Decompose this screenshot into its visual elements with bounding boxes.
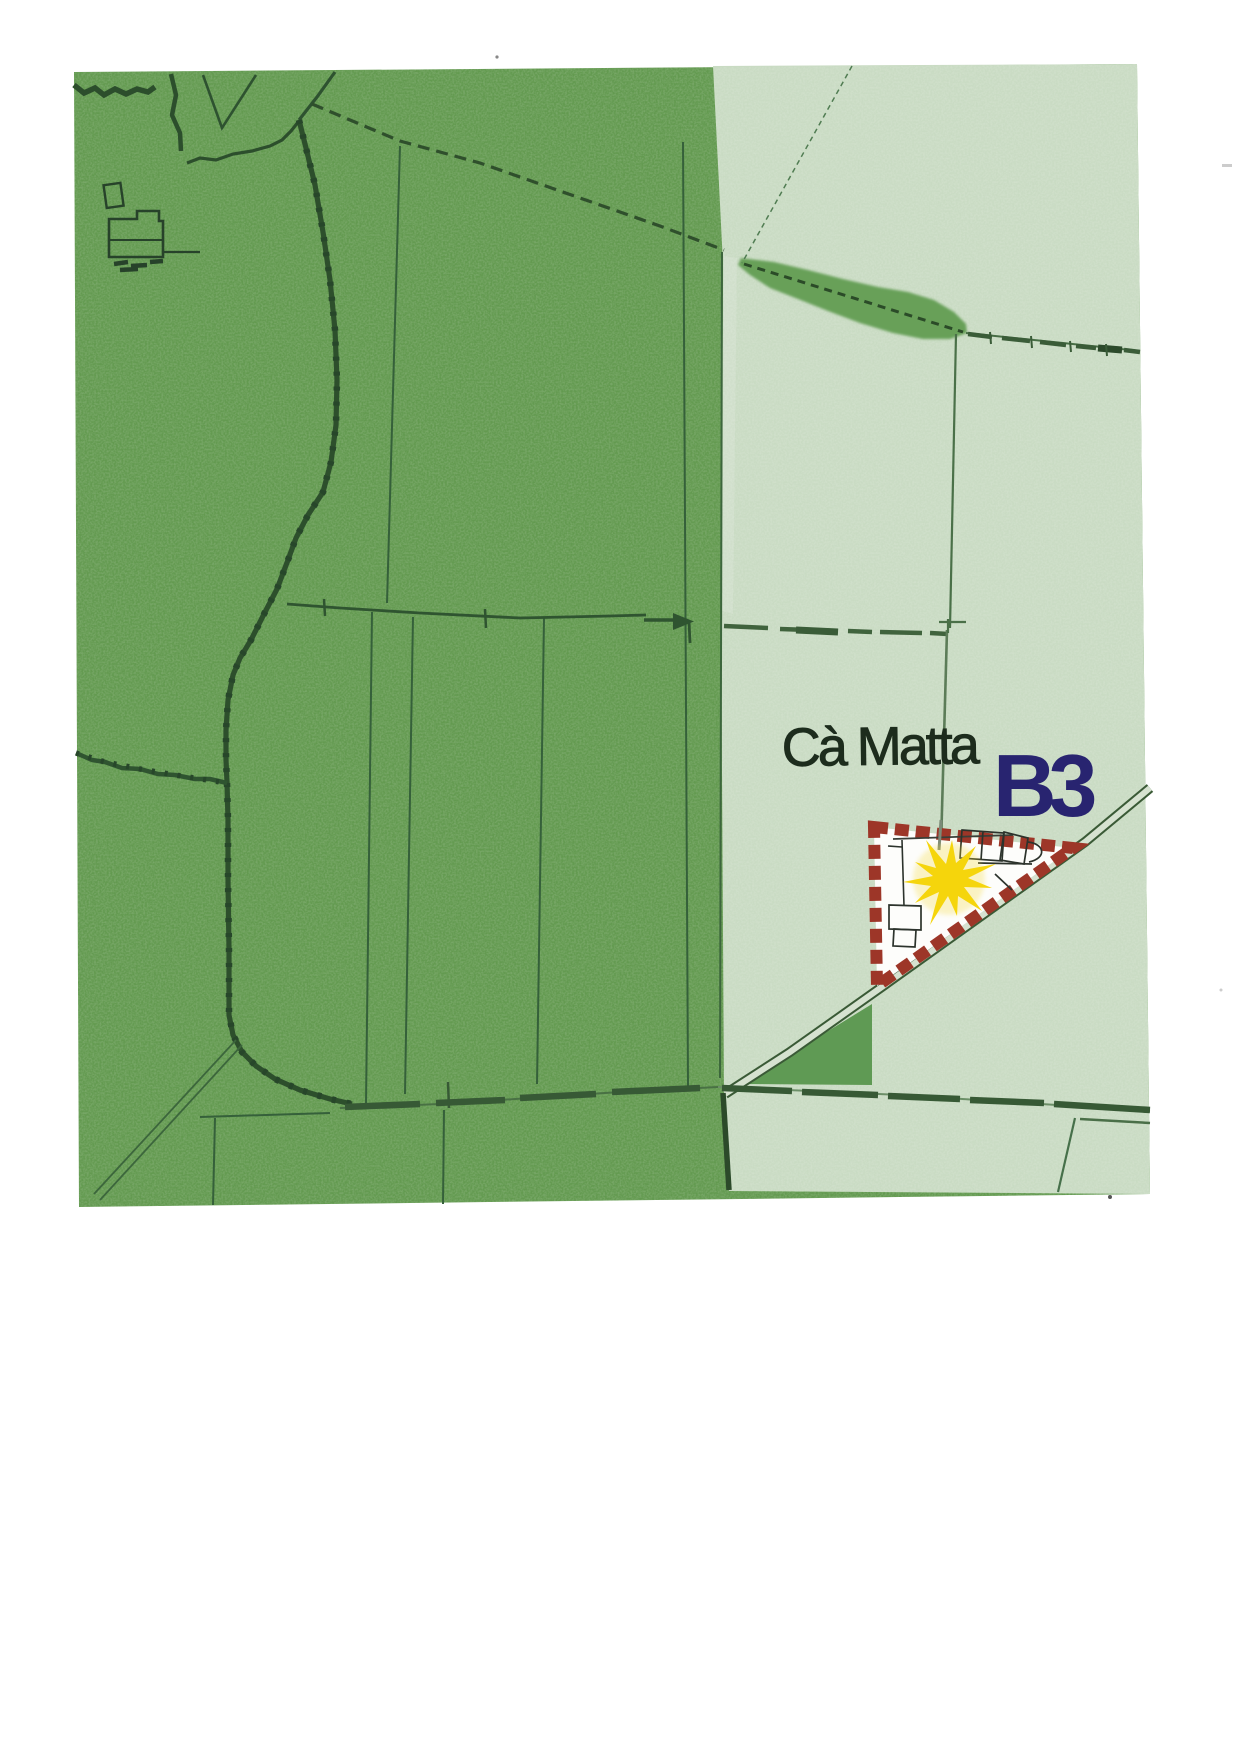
svg-text:Cà Matta: Cà Matta <box>781 715 981 778</box>
svg-text:B3: B3 <box>993 736 1095 835</box>
